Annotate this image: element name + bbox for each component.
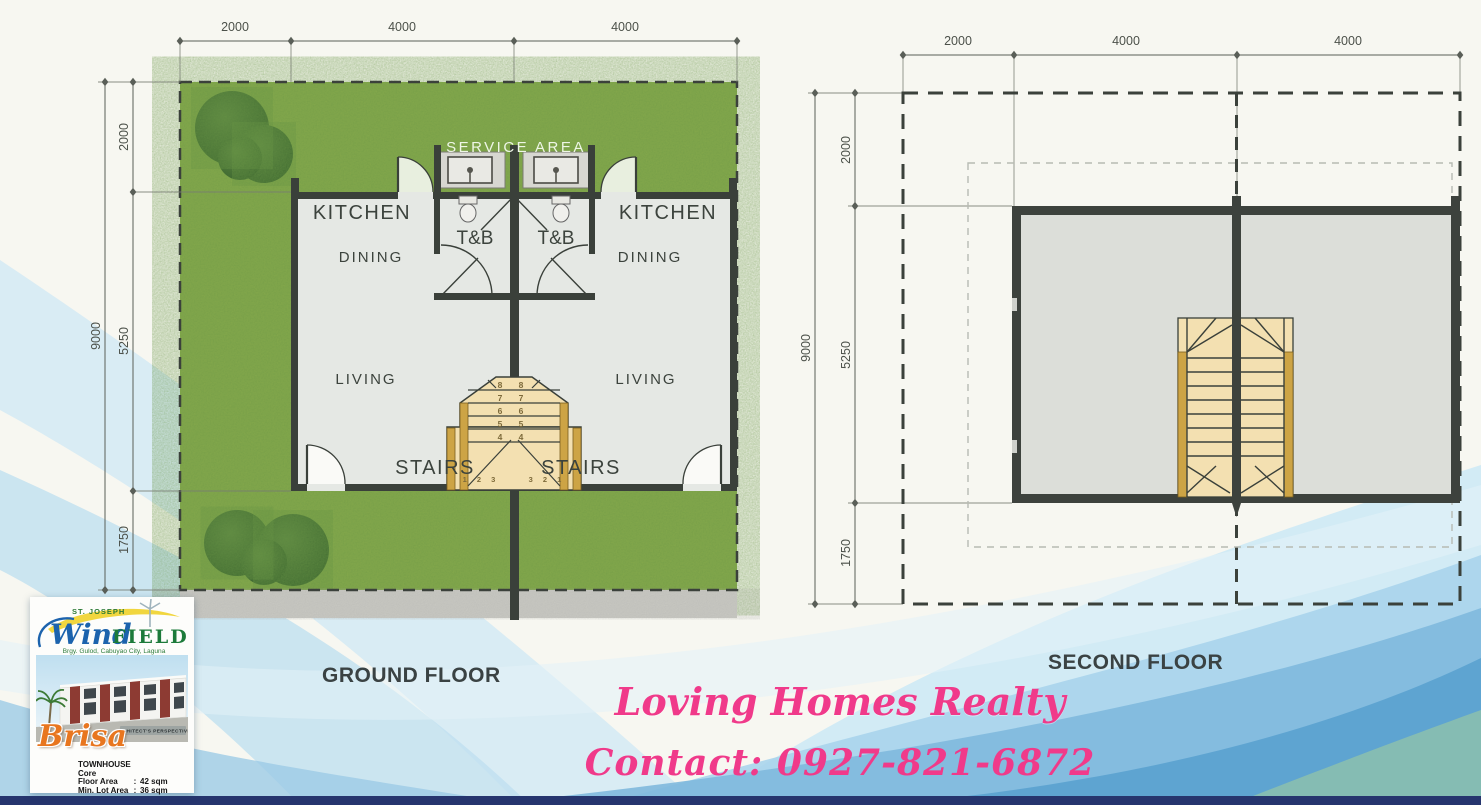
service-sink-right [523,152,591,188]
stair-tread-row: 7 7 [498,393,531,403]
logo-address: Brgy. Gulod, Cabuyao City, Laguna [63,648,166,655]
dim-label: 2000 [221,20,249,34]
dining-label-left: DINING [339,249,404,266]
tb-label-right: T&B [538,228,575,249]
dim-label: 4000 [388,20,416,34]
service-sink-left [437,152,505,188]
windfield-logo: ST. JOSEPH Wind FIELD Brgy. Gulod, Cabuy… [30,599,194,657]
service-area-label: SERVICE AREA [446,139,586,156]
logo-field: FIELD [112,626,189,648]
dim-label: 5250 [839,341,853,369]
tb-label-left: T&B [457,228,494,249]
dim-label: 4000 [1112,34,1140,48]
spec-lot-area: Min. Lot Area : 36 sqm [78,787,168,796]
spec-separator: : [130,787,140,796]
ground-floor-title: GROUND FLOOR [322,664,501,688]
dim-label: 9000 [799,334,813,362]
dim-label: 2000 [944,34,972,48]
kitchen-label-right: KITCHEN [619,202,717,224]
dim-label: 2000 [839,136,853,164]
dim-label: 9000 [89,322,103,350]
second-floor-plan: 2000 4000 4000 9000 2000 5250 1750 [790,20,1481,670]
toilet-right [552,196,570,222]
living-label-left: LIVING [335,371,396,388]
kitchen-label-left: KITCHEN [313,202,411,224]
living-label-right: LIVING [615,371,676,388]
dim-label: 2000 [117,123,131,151]
stair-tread-row: 5 5 [498,419,531,429]
dim-label: 4000 [1334,34,1362,48]
dim-label: 5250 [117,327,131,355]
dim-label: 4000 [611,20,639,34]
stair-tread-row: 8 8 [498,380,531,390]
spec-lot-area-label: Min. Lot Area [78,787,130,796]
stair-tread-row: 4 4 [498,432,531,442]
stairs-label-left: STAIRS [395,457,475,479]
stair-tread-row: 6 6 [498,406,531,416]
flyer-page: 8 8 7 7 6 6 5 5 4 4 1 2 3 3 2 1 2000 400… [0,0,1481,805]
toilet-left [459,196,477,222]
stairs-label-right: STAIRS [541,457,621,479]
specs-block: TOWNHOUSE Core Floor Area : 42 sqm Min. … [78,761,168,795]
logo-prefix: ST. JOSEPH [72,607,125,616]
sidewalk [180,590,737,618]
second-floor-title: SECOND FLOOR [1048,651,1223,675]
dining-label-right: DINING [618,249,683,266]
ground-floor-plan: 8 8 7 7 6 6 5 5 4 4 1 2 3 3 2 1 2000 400… [80,0,760,640]
dim-label: 1750 [839,539,853,567]
developer-card: ST. JOSEPH Wind FIELD Brgy. Gulod, Cabuy… [30,597,194,793]
spec-lot-area-value: 36 sqm [140,787,168,796]
bottom-navy-bar [0,796,1481,805]
dim-label: 1750 [117,526,131,554]
model-name: Brisa [38,719,127,754]
